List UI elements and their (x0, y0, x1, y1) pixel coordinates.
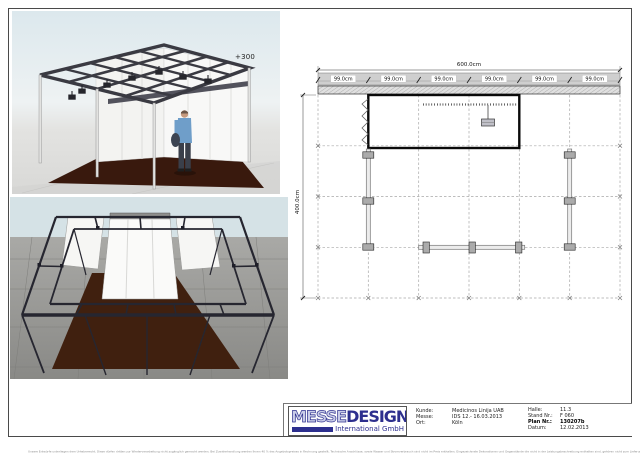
truss-left (363, 149, 374, 250)
drawing-fields: Halle: 11.3 Stand Nr.: F 060 Plan Nr.: 1… (528, 408, 589, 440)
segment-label: 99.0cm (334, 77, 353, 83)
segment-label: 99.0cm (535, 77, 554, 83)
logo-subtitle: International GmbH (335, 425, 404, 433)
segment-dimension-band: 99.0cm 99.0cm 99.0cm 99.0cm 99.0cm 99.0c… (316, 73, 622, 85)
back-wall-plan (318, 86, 620, 94)
segment-label: 99.0cm (485, 77, 504, 83)
logo-bar (292, 427, 333, 432)
cabin-outline (368, 95, 519, 148)
logo-subtitle-row: International GmbH (292, 425, 404, 433)
field-value: Köln (452, 421, 463, 427)
booth-perspective-render (12, 11, 280, 194)
title-block: MESSEDESIGN International GmbH Kunde: Me… (283, 403, 632, 436)
disclaimer: Unsere Entwürfe unterliegen dem Urheberr… (28, 440, 618, 450)
grid-lines (318, 95, 620, 298)
booth-top-render (10, 197, 288, 379)
booth-perspective-image (12, 11, 280, 194)
logo-wordmark: MESSEDESIGN (291, 407, 407, 426)
height-dimension: 400.0cm (295, 93, 316, 300)
project-fields: Kunde: Medicinos Linija UAB Messe: IDS 1… (416, 409, 504, 441)
field-ort: Ort: Köln (416, 421, 504, 427)
booth-top-image (10, 197, 288, 379)
floor-plan-svg: 600.0cm 99.0cm 99.0cm 99.0cm 99.0cm 9 (293, 52, 630, 304)
field-value: 12.02.2013 (560, 426, 589, 432)
center-panel (102, 219, 178, 299)
hanging-projector (482, 105, 495, 126)
height-label: 400.0cm (295, 190, 301, 214)
logo-design-text: DESIGN (346, 407, 407, 426)
truss-bottom (419, 242, 525, 253)
truss-right (564, 149, 575, 250)
company-logo: MESSEDESIGN International GmbH (288, 406, 407, 436)
floor-plan-drawing: 600.0cm 99.0cm 99.0cm 99.0cm 99.0cm 9 (293, 52, 630, 304)
logo-messe-text: MESSE (291, 407, 346, 426)
segment-label: 99.0cm (434, 77, 453, 83)
total-width-label: 600.0cm (457, 62, 481, 68)
segment-label: 99.0cm (384, 77, 403, 83)
segment-label: 99.0cm (585, 77, 604, 83)
field-label: Datum: (528, 426, 560, 432)
total-width-dimension: 600.0cm (316, 62, 622, 73)
field-label: Ort: (416, 421, 452, 427)
field-datum: Datum: 12.02.2013 (528, 426, 589, 432)
elevation-label: +300 (235, 53, 255, 61)
